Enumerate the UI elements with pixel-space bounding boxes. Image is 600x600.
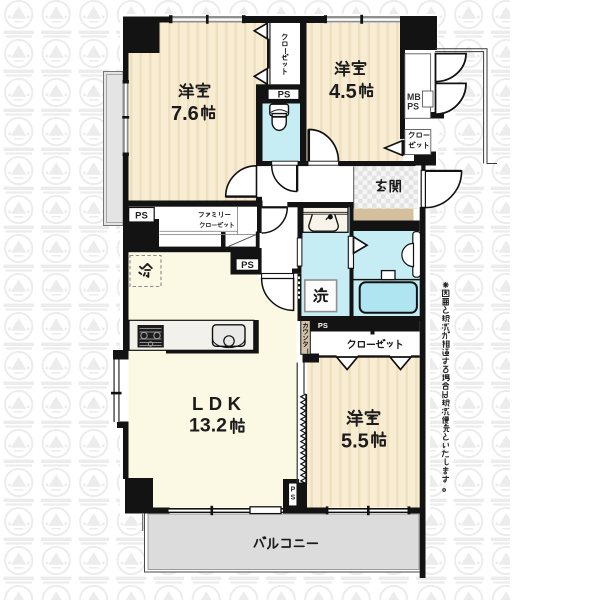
- svg-text:7.6: 7.6: [171, 103, 199, 125]
- svg-text:4.5: 4.5: [329, 81, 357, 103]
- svg-text:LDK: LDK: [192, 393, 247, 414]
- svg-text:5.5: 5.5: [341, 430, 369, 452]
- svg-text:S: S: [291, 495, 296, 502]
- svg-text:PS: PS: [318, 321, 328, 330]
- svg-text:PS: PS: [241, 260, 254, 271]
- svg-text:PS: PS: [278, 90, 291, 101]
- svg-text:PS: PS: [135, 210, 148, 221]
- svg-text:P: P: [291, 487, 296, 494]
- svg-text:13.2: 13.2: [189, 415, 227, 437]
- svg-text:MB: MB: [407, 92, 421, 102]
- svg-text:PS: PS: [407, 102, 419, 112]
